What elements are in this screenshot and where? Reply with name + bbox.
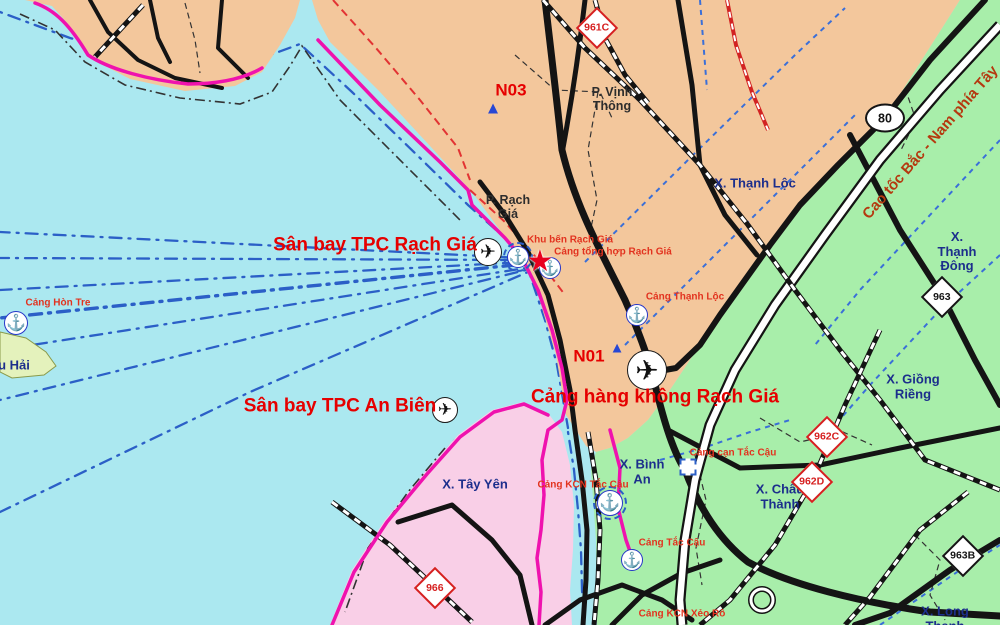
road-shield-label: 961C: [584, 22, 609, 34]
label-cang-thanh-loc: Cảng Thạnh Lộc: [646, 291, 724, 302]
road-shield-963: 963: [921, 276, 963, 318]
label-x-thanh-dong: X. Thạnh Đông: [936, 230, 979, 274]
label-cang-kcn-xeo-ro: Cảng KCN Xẻo Rô: [639, 608, 726, 619]
label-san-bay-tpc-an-bien: Sân bay TPC An Biên: [244, 395, 437, 416]
road-shield-label: 963: [933, 291, 951, 303]
road-shield-label: 962C: [814, 431, 839, 443]
label-cang-hon-tre: Cảng Hòn Tre: [25, 297, 90, 308]
road-shield-qa-80: 80: [865, 104, 905, 133]
label-cang-kcn-tac-cau: Cảng KCN Tắc Cậu: [537, 479, 628, 490]
road-shield-label: 963B: [950, 550, 975, 562]
labels-layer: Sân bay TPC Rạch GiáSân bay TPC An BiênC…: [0, 0, 1000, 625]
road-shield-label: 966: [426, 582, 444, 594]
label-zone-n03: N03: [495, 80, 526, 99]
label-cang-hang-khong-rach-gia: Cảng hàng không Rạch Giá: [531, 386, 779, 407]
road-shield-961c: 961C: [576, 7, 618, 49]
label-x-long-thanh: X. Long Thạnh: [921, 604, 969, 625]
road-shield-label: 80: [878, 111, 892, 125]
map-view[interactable]: ✈✈✈⚓⚓⚓⚓⚓⚓★▲▲ Sân bay TPC Rạch GiáSân bay…: [0, 0, 1000, 625]
label-p-vinh-thong: P. Vịnh Thông: [592, 85, 633, 113]
label-x-tay-yen: X. Tây Yên: [442, 478, 508, 493]
road-shield-966: 966: [414, 567, 456, 609]
road-shield-962c: 962C: [806, 416, 848, 458]
label-x-thanh-loc: X. Thạnh Lộc: [714, 177, 796, 192]
label-khu-ben-rach-gia: Khu bến Rạch Giá: [527, 234, 613, 245]
label-cang-tac-cau: Cảng Tắc Cậu: [639, 537, 706, 548]
label-zone-n01: N01: [573, 346, 604, 365]
label-cang-tong-hop-rach-gia: Cảng tổng hợp Rạch Giá: [554, 246, 672, 257]
label-cao-toc-bac-nam: Cao tốc Bắc - Nam phía Tây: [860, 63, 1000, 223]
road-shield-label: 962D: [799, 476, 824, 488]
label-p-rach-gia: P. Rạch Giá: [486, 193, 530, 221]
label-island-hai: u Hải: [0, 359, 30, 374]
label-san-bay-tpc-rach-gia: Sân bay TPC Rạch Giá: [273, 234, 477, 255]
label-cang-can-tac-cau: Cảng cạn Tắc Cậu: [690, 447, 777, 458]
road-shield-963b: 963B: [942, 535, 984, 577]
label-x-giong-rieng: X. Giồng Riềng: [886, 372, 939, 401]
